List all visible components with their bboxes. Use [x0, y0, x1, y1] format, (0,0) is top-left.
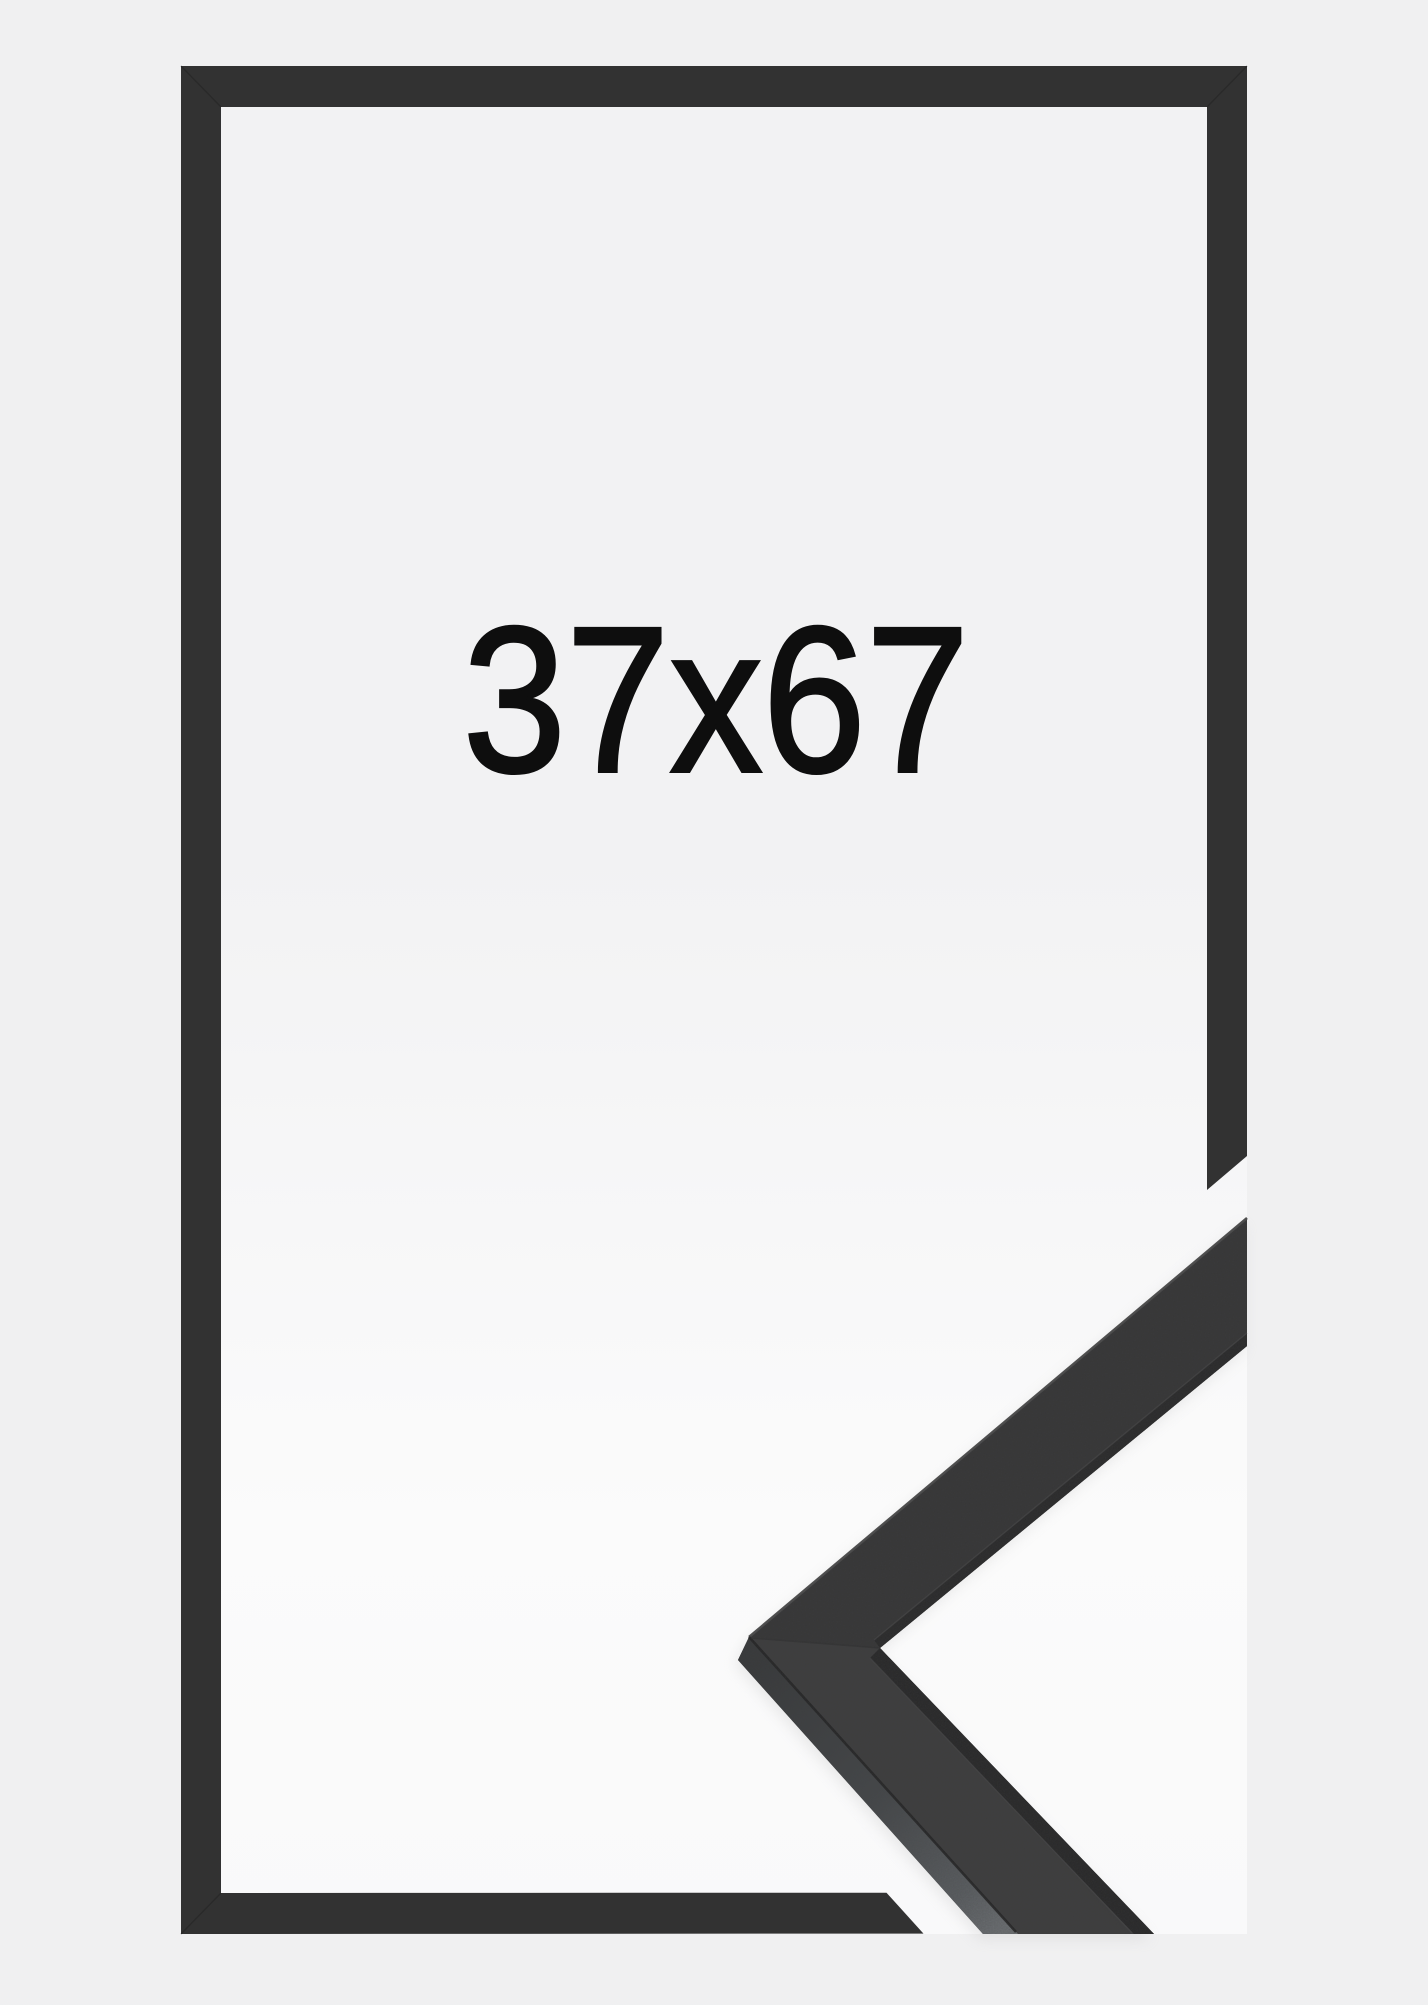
- svg-text:37x67: 37x67: [463, 583, 970, 816]
